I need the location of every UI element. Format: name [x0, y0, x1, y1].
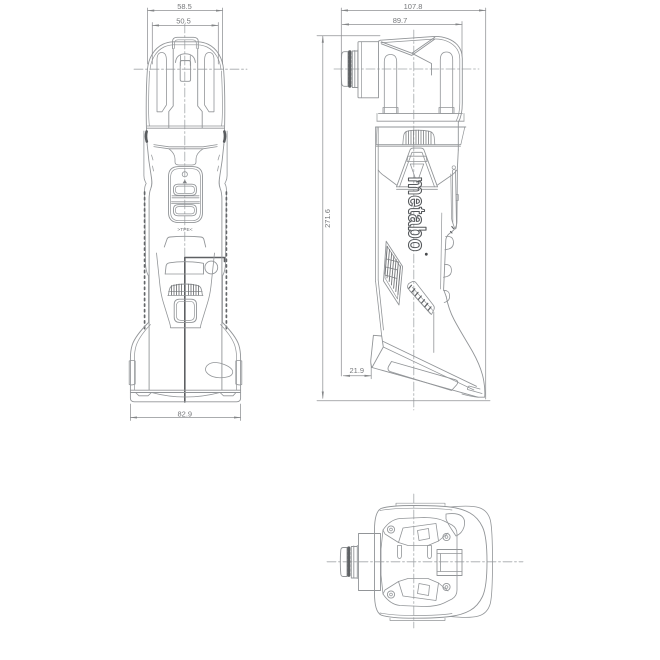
- svg-text:271.6: 271.6: [323, 209, 332, 228]
- svg-text:107.8: 107.8: [404, 2, 423, 11]
- svg-text:58.5: 58.5: [177, 2, 192, 11]
- svg-text:>TPE<: >TPE<: [177, 227, 192, 233]
- svg-text:21.9: 21.9: [349, 366, 364, 375]
- svg-text:metabo: metabo: [403, 177, 430, 252]
- svg-text:50.5: 50.5: [176, 17, 191, 26]
- svg-text:89.7: 89.7: [393, 16, 408, 25]
